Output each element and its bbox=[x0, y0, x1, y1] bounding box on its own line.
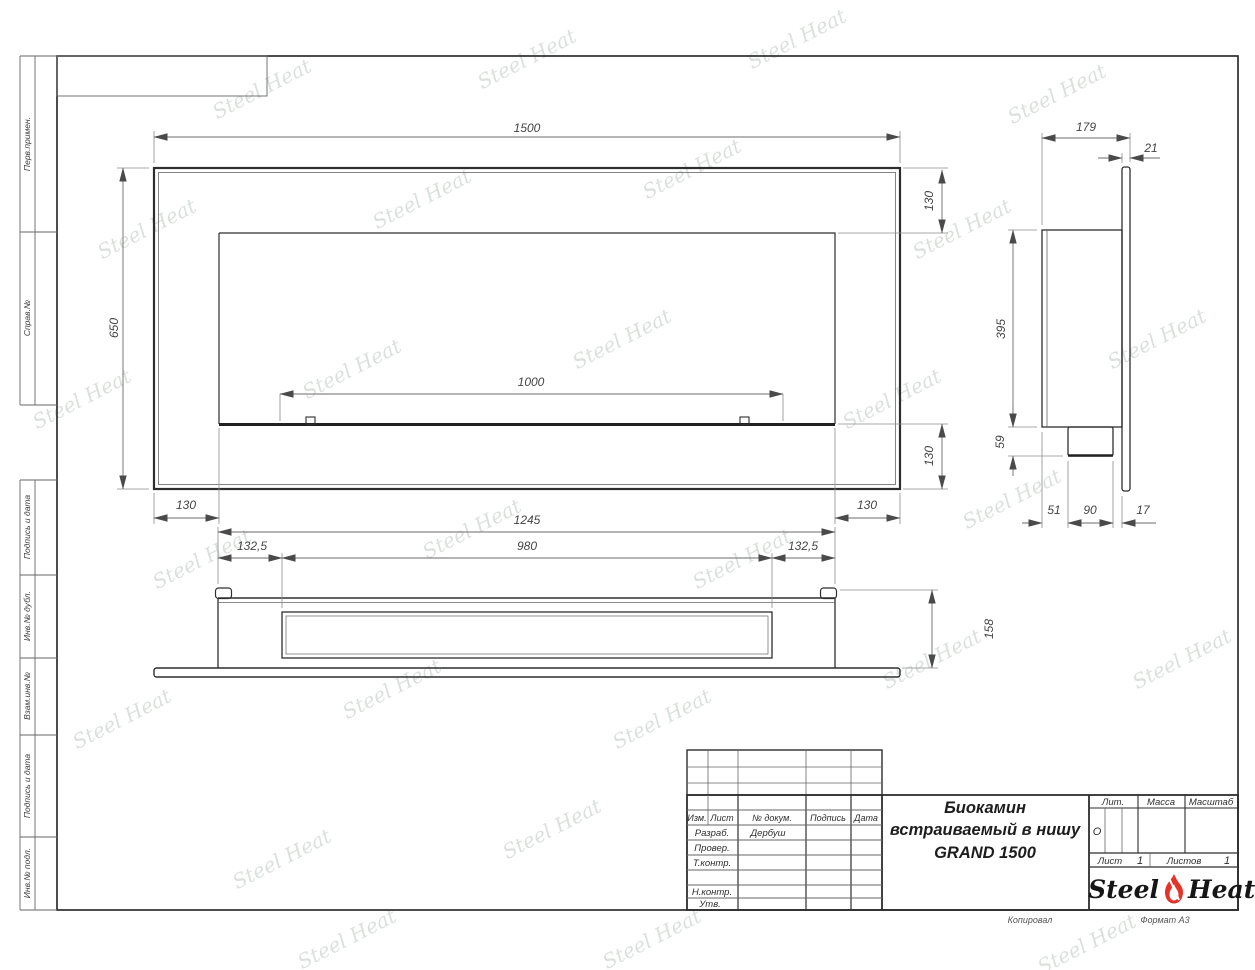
dim-front-left-inset-value: 130 bbox=[176, 498, 196, 512]
dim-side-burner-depth-value: 90 bbox=[1083, 503, 1097, 517]
dim-side-burner-drop-value: 59 bbox=[993, 435, 1007, 449]
dim-front-left-inset: 130 bbox=[154, 428, 219, 524]
watermark-text: Steel Heat bbox=[229, 823, 336, 894]
watermark-text: Steel Heat bbox=[29, 363, 136, 434]
tb-sheet-label: Лист bbox=[1097, 856, 1123, 867]
dim-front-height: 650 bbox=[107, 168, 149, 489]
tb-col-izm: Изм. bbox=[687, 813, 706, 823]
bottom-clip-left bbox=[216, 588, 232, 599]
dim-side-panel-thickness-value: 21 bbox=[1143, 141, 1157, 155]
watermark-text: Steel Heat bbox=[744, 3, 851, 74]
margin-label-sprav-no: Справ.№ bbox=[22, 300, 32, 336]
margin-label-perv-primen: Перв.примен. bbox=[22, 117, 32, 171]
dim-front-width: 1500 bbox=[154, 121, 900, 163]
tb-col-data: Дата bbox=[853, 813, 878, 823]
dim-side-depth: 179 bbox=[1042, 120, 1130, 225]
dim-front-burner-width: 1000 bbox=[280, 375, 783, 421]
dim-front-burner-width-value: 1000 bbox=[518, 375, 545, 389]
watermark-text: Steel Heat bbox=[959, 463, 1066, 534]
tb-row-nkontr: Н.контр. bbox=[692, 887, 732, 898]
bottom-view bbox=[154, 588, 900, 677]
front-view-dimensions: 1500 650 130 130 1000 130 bbox=[107, 121, 948, 524]
dim-front-bottom-inset: 130 bbox=[838, 424, 948, 489]
watermark-text: Steel Heat bbox=[569, 303, 676, 374]
side-burner-box bbox=[1068, 427, 1113, 456]
bottom-base-plate bbox=[154, 668, 900, 677]
logo-steel-text: Steel bbox=[1088, 875, 1159, 904]
side-view-dimensions: 179 21 395 59 51 90 17 bbox=[993, 120, 1160, 528]
dim-front-top-inset-value: 130 bbox=[922, 191, 936, 211]
tb-lit-value: О bbox=[1093, 826, 1102, 838]
bottom-burner-recess bbox=[282, 612, 772, 658]
bottom-clip-right bbox=[821, 588, 837, 599]
bottom-view-dimensions: 1245 132,5 980 132,5 158 bbox=[218, 513, 996, 668]
side-view bbox=[1042, 167, 1130, 491]
dim-front-top-inset: 130 bbox=[838, 168, 948, 233]
tb-designer-name: Дербуш bbox=[749, 828, 785, 839]
dim-side-body-height-value: 395 bbox=[994, 319, 1008, 339]
front-view bbox=[154, 168, 900, 489]
drawing-canvas: Steel HeatSteel HeatSteel HeatSteel Heat… bbox=[0, 0, 1255, 970]
watermark-text: Steel Heat bbox=[1104, 303, 1211, 374]
watermark-text: Steel Heat bbox=[689, 523, 796, 594]
tb-col-podpis: Подпись bbox=[810, 813, 846, 823]
tb-row-tkontr: Т.контр. bbox=[693, 858, 731, 869]
footer-copied-label: Копировал bbox=[1008, 915, 1053, 925]
tb-mass-label: Масса bbox=[1147, 797, 1175, 808]
logo-heat-text: Heat bbox=[1187, 875, 1255, 904]
watermark-text: Steel Heat bbox=[1004, 58, 1111, 129]
margin-label-inv-dubl: Инв.№ дубл. bbox=[22, 591, 32, 641]
steelheat-logo: Steel Heat bbox=[1088, 874, 1255, 904]
doc-title-line-1: Биокамин bbox=[944, 799, 1026, 817]
dim-front-height-value: 650 bbox=[107, 318, 121, 338]
dim-bottom-left-offset-value: 132,5 bbox=[237, 539, 267, 553]
watermark-text: Steel Heat bbox=[94, 193, 201, 264]
tb-col-list: Лист bbox=[709, 813, 734, 823]
margin-label-podpis-data-1: Подпись и дата bbox=[22, 495, 32, 560]
tb-row-utv: Утв. bbox=[698, 899, 721, 910]
dim-front-bottom-inset-value: 130 bbox=[922, 446, 936, 466]
watermark-text: Steel Heat bbox=[149, 523, 256, 594]
margin-label-vzamen-inv: Взам.инв.№ bbox=[22, 672, 32, 720]
tb-scale-label: Масштаб bbox=[1189, 797, 1234, 808]
tb-lit-label: Лит. bbox=[1101, 797, 1124, 808]
margin-label-podpis-data-2: Подпись и дата bbox=[22, 754, 32, 819]
watermark-text: Steel Heat bbox=[369, 163, 476, 234]
dim-side-back-offset-value: 51 bbox=[1047, 503, 1060, 517]
watermark-text: Steel Heat bbox=[599, 903, 706, 970]
watermark-text: Steel Heat bbox=[499, 793, 606, 864]
dim-bottom-height-value: 158 bbox=[982, 619, 996, 639]
dim-side-panel-thickness: 21 bbox=[1098, 141, 1160, 163]
doc-title-line-3: GRAND 1500 bbox=[934, 844, 1037, 862]
dim-bottom-body-width-value: 1245 bbox=[514, 513, 541, 527]
dim-front-right-inset: 130 bbox=[835, 428, 900, 524]
tb-row-razrab: Разраб. bbox=[695, 828, 729, 839]
watermark-text: Steel Heat bbox=[294, 903, 401, 970]
watermark-text: Steel Heat bbox=[419, 493, 526, 564]
watermark-text: Steel Heat bbox=[609, 683, 716, 754]
doc-title-line-2: встраиваемый в нишу bbox=[890, 821, 1081, 839]
watermark-text: Steel Heat bbox=[474, 23, 581, 94]
dim-side-body-height: 395 bbox=[994, 230, 1037, 427]
watermark-text: Steel Heat bbox=[69, 683, 176, 754]
side-front-panel bbox=[1122, 167, 1130, 491]
tb-sheets-label: Листов bbox=[1166, 856, 1202, 867]
dim-side-bottom-row: 51 90 17 bbox=[1022, 432, 1156, 528]
tb-row-prover: Провер. bbox=[694, 843, 729, 854]
side-body bbox=[1042, 230, 1122, 427]
footer-format-label: Формат А3 bbox=[1140, 915, 1189, 925]
dim-front-right-inset-value: 130 bbox=[857, 498, 877, 512]
tb-col-docnum: № докум. bbox=[752, 813, 792, 823]
flame-icon bbox=[1165, 874, 1183, 904]
watermark-text: Steel Heat bbox=[299, 333, 406, 404]
tb-sheets-value: 1 bbox=[1224, 855, 1230, 867]
dim-side-depth-value: 179 bbox=[1076, 120, 1096, 134]
margin-label-inv-podl: Инв.№ подл. bbox=[22, 848, 32, 898]
tb-sheet-value: 1 bbox=[1137, 855, 1143, 867]
dim-front-width-value: 1500 bbox=[514, 121, 541, 135]
front-outer-panel bbox=[154, 168, 900, 489]
dim-side-gap-value: 17 bbox=[1136, 503, 1151, 517]
title-block: Изм. Лист № докум. Подпись Дата Разраб. … bbox=[687, 750, 1255, 925]
dim-bottom-recess-value: 980 bbox=[517, 539, 537, 553]
watermark-text: Steel Heat bbox=[209, 53, 316, 124]
watermark-text: Steel Heat bbox=[339, 653, 446, 724]
dim-bottom-right-offset-value: 132,5 bbox=[788, 539, 818, 553]
watermark-text: Steel Heat bbox=[839, 363, 946, 434]
watermark-text: Steel Heat bbox=[1129, 623, 1236, 694]
drawing-sheet: Steel HeatSteel HeatSteel HeatSteel Heat… bbox=[0, 0, 1255, 970]
